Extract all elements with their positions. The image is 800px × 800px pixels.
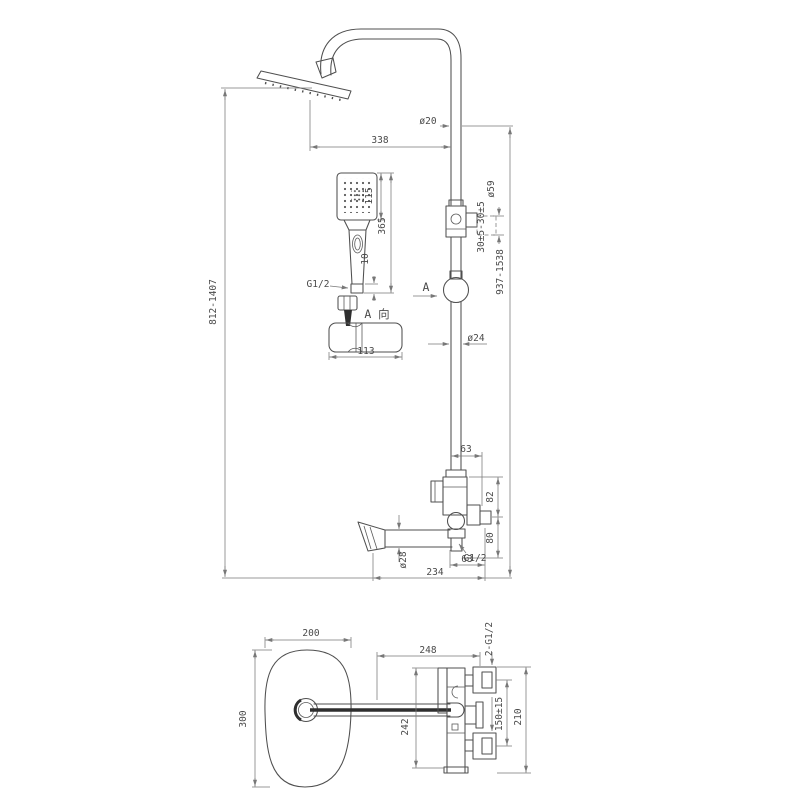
label-section-a: A — [423, 280, 430, 294]
label-inlet-threads: 2-G1/2 — [484, 622, 495, 656]
bath-spout — [358, 522, 452, 551]
dim-handshower-connector: 10 — [360, 253, 371, 265]
dim-inlet-spacing: 150±15 — [494, 697, 505, 731]
dim-height-left: 812-1407 — [208, 279, 219, 325]
wall-hook — [338, 296, 357, 326]
dim-body-width: 210 — [513, 708, 524, 725]
front-view: ø20 338 812-1407 937-1538 115 365 10 G1/… — [208, 29, 513, 581]
dim-spout-reach: 234 — [426, 567, 443, 578]
valve-plan — [438, 667, 496, 773]
dim-valve-offset-bottom: 63 — [461, 554, 472, 565]
dim-slider-range: 30±5-30±5 — [476, 201, 487, 252]
dim-arm-reach: 338 — [371, 135, 388, 146]
dim-head-depth: 300 — [238, 710, 249, 727]
label-view-a: A 向 — [364, 307, 389, 321]
slider-bracket — [446, 200, 496, 237]
dim-body-depth: 242 — [400, 718, 411, 735]
dim-valve-space-upper: 82 — [485, 491, 496, 502]
dim-handshower-width: 115 — [364, 187, 375, 204]
top-view: 200 300 248 242 2-G1/2 150±15 210 — [238, 622, 531, 787]
shower-system-technical-drawing: ø20 338 812-1407 937-1538 115 365 10 G1/… — [0, 0, 800, 800]
dim-valve-space-lower: 80 — [485, 532, 496, 544]
dim-head-width: 200 — [302, 628, 319, 639]
dim-handshower-length: 365 — [377, 217, 388, 234]
dim-reach: 248 — [419, 645, 436, 656]
dim-valve-offset-top: 63 — [460, 444, 471, 455]
head-plan — [265, 650, 351, 787]
arm-plan — [310, 704, 451, 716]
dim-bracket-length: 113 — [357, 346, 374, 357]
dim-spout-diameter: ø28 — [398, 551, 409, 568]
label-handshower-thread: G1/2 — [307, 279, 330, 290]
drawing-canvas: ø20 338 812-1407 937-1538 115 365 10 G1/… — [0, 0, 800, 800]
dim-slider-diameter: ø59 — [486, 180, 497, 197]
dim-rail-diameter: ø24 — [467, 333, 484, 344]
dim-pipe-diameter: ø20 — [419, 116, 436, 127]
dim-height-right: 937-1538 — [495, 249, 506, 295]
overhead-shower-head — [257, 58, 351, 100]
riser-diverter — [444, 271, 469, 303]
